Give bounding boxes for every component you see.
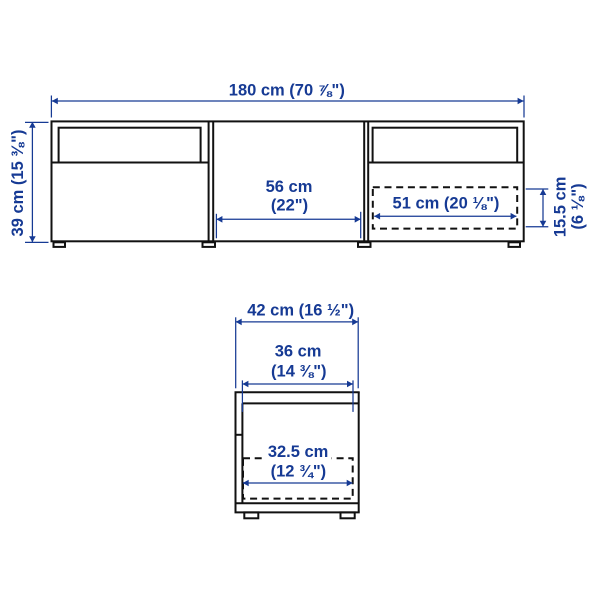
svg-text:36 cm: 36 cm — [275, 343, 322, 361]
svg-text:51 cm (20 ⅛"): 51 cm (20 ⅛") — [393, 195, 500, 213]
svg-text:42 cm (16 ½"): 42 cm (16 ½") — [247, 301, 354, 319]
svg-text:32.5 cm: 32.5 cm — [268, 443, 329, 461]
svg-text:(14 ⅜"): (14 ⅜") — [271, 363, 327, 381]
svg-text:(6 ⅛"): (6 ⅛") — [569, 183, 587, 229]
svg-text:15.5 cm: 15.5 cm — [552, 177, 570, 238]
svg-text:180 cm (70 ⅞"): 180 cm (70 ⅞") — [229, 82, 345, 100]
svg-text:(12 ¾"): (12 ¾") — [271, 462, 327, 480]
svg-text:39 cm (15 ⅜"): 39 cm (15 ⅜") — [9, 130, 27, 237]
svg-text:56 cm: 56 cm — [266, 178, 313, 196]
svg-text:(22"): (22") — [271, 197, 308, 215]
